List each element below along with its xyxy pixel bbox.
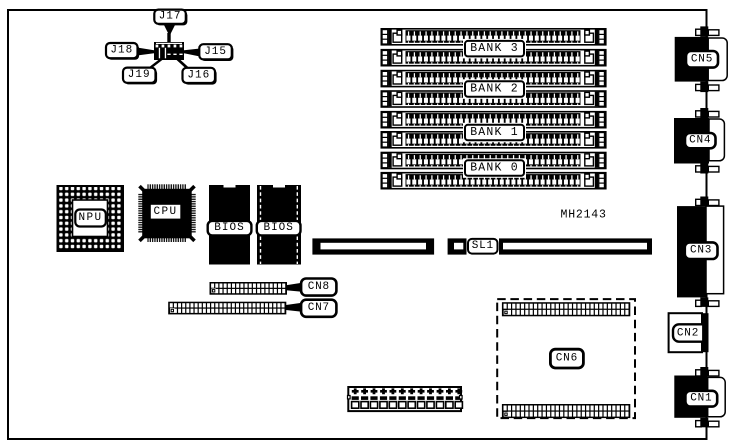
svg-text:CN1: CN1 xyxy=(690,393,712,405)
svg-text:BANK 3: BANK 3 xyxy=(470,42,519,55)
svg-text:J18: J18 xyxy=(110,45,133,57)
svg-text:CN6: CN6 xyxy=(556,353,578,365)
svg-text:CN2: CN2 xyxy=(677,327,699,339)
svg-text:BANK 2: BANK 2 xyxy=(470,83,519,96)
svg-text:CN8: CN8 xyxy=(308,281,330,293)
svg-text:CN3: CN3 xyxy=(690,245,712,257)
svg-text:CN4: CN4 xyxy=(689,135,711,147)
svg-text:BANK 0: BANK 0 xyxy=(470,162,519,175)
svg-text:J16: J16 xyxy=(187,69,210,81)
svg-text:J19: J19 xyxy=(128,69,151,81)
svg-text:J17: J17 xyxy=(159,11,182,23)
svg-text:BIOS: BIOS xyxy=(263,222,293,234)
svg-text:NPU: NPU xyxy=(78,212,102,224)
svg-text:J15: J15 xyxy=(204,46,227,58)
svg-text:CPU: CPU xyxy=(153,206,177,218)
svg-text:CN7: CN7 xyxy=(308,302,330,314)
svg-text:BIOS: BIOS xyxy=(214,222,244,234)
svg-text:BANK 1: BANK 1 xyxy=(470,126,519,139)
svg-text:MH2143: MH2143 xyxy=(561,209,607,222)
svg-text:CN5: CN5 xyxy=(691,53,713,65)
svg-text:SL1: SL1 xyxy=(472,240,494,252)
